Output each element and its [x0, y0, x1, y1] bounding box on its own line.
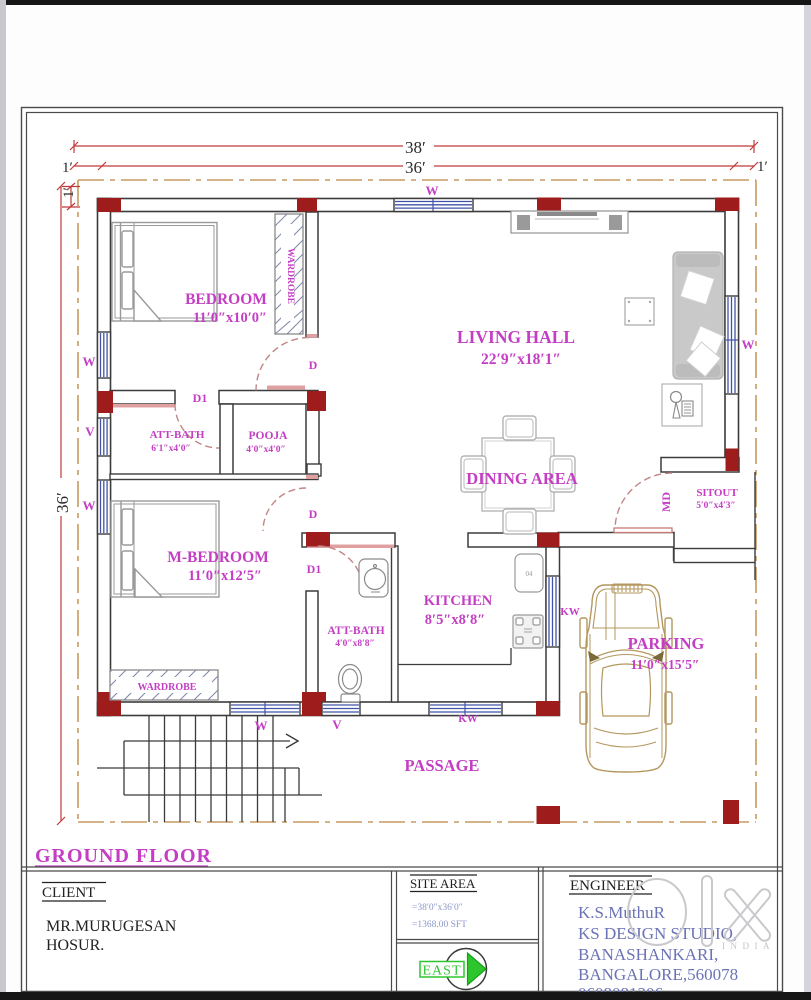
svg-text:W: W	[255, 718, 268, 733]
svg-text:4′0″x4′0″: 4′0″x4′0″	[246, 445, 286, 455]
svg-text:EAST: EAST	[423, 964, 462, 979]
svg-text:W: W	[83, 354, 96, 369]
svg-text:INDIA: INDIA	[722, 941, 775, 951]
svg-text:W: W	[83, 498, 96, 513]
svg-text:ATT-BATH: ATT-BATH	[327, 625, 384, 637]
svg-text:11′0″x15′5″: 11′0″x15′5″	[630, 657, 699, 672]
svg-text:M-BEDROOM: M-BEDROOM	[167, 549, 269, 566]
svg-text:K.S.MuthuR: K.S.MuthuR	[578, 903, 666, 922]
svg-text:22′9″x18′1″: 22′9″x18′1″	[481, 351, 561, 368]
svg-text:KW: KW	[560, 606, 580, 618]
svg-text:BANGALORE,560078: BANGALORE,560078	[578, 965, 738, 984]
svg-text:WARDROBE: WARDROBE	[138, 682, 197, 693]
svg-text:PASSAGE: PASSAGE	[405, 756, 480, 775]
svg-text:LIVING HALL: LIVING HALL	[457, 327, 575, 347]
svg-text:WARDROBE: WARDROBE	[285, 248, 295, 304]
svg-text:5′0″x4′3″: 5′0″x4′3″	[696, 501, 736, 511]
svg-text:PARKING: PARKING	[628, 634, 705, 653]
svg-text:V: V	[85, 424, 95, 439]
svg-text:=38′0″x36′0″: =38′0″x36′0″	[412, 903, 463, 913]
svg-text:6′1″x4′0″: 6′1″x4′0″	[151, 444, 191, 454]
svg-text:D: D	[309, 358, 318, 372]
svg-text:MR.MURUGESAN: MR.MURUGESAN	[46, 918, 177, 935]
svg-text:11′0″x12′5″: 11′0″x12′5″	[188, 568, 262, 584]
svg-text:04: 04	[526, 570, 534, 578]
svg-text:D: D	[309, 507, 318, 521]
svg-text:KW: KW	[458, 713, 478, 725]
svg-text:4′0″x8′8″: 4′0″x8′8″	[335, 639, 375, 649]
svg-text:D1: D1	[193, 391, 208, 405]
svg-text:BANASHANKARI,: BANASHANKARI,	[578, 945, 718, 964]
svg-text:W: W	[742, 337, 755, 352]
svg-text:SITE AREA: SITE AREA	[410, 876, 476, 891]
svg-text:ATT-BATH: ATT-BATH	[150, 429, 205, 441]
svg-text:1′: 1′	[61, 187, 77, 198]
svg-text:V: V	[332, 717, 342, 732]
svg-text:36′: 36′	[405, 158, 426, 177]
svg-text:MD: MD	[659, 492, 673, 512]
svg-text:CLIENT: CLIENT	[42, 885, 95, 901]
svg-text:11′0″x10′0″: 11′0″x10′0″	[193, 310, 267, 326]
svg-text:8′5″x8′8″: 8′5″x8′8″	[425, 612, 485, 628]
svg-text:KITCHEN: KITCHEN	[424, 593, 493, 609]
svg-text:38′: 38′	[405, 138, 426, 157]
svg-text:1′: 1′	[757, 159, 768, 175]
svg-text:36′: 36′	[53, 492, 72, 513]
svg-text:D1: D1	[307, 562, 322, 576]
svg-text:BEDROOM: BEDROOM	[185, 291, 267, 308]
svg-text:1′: 1′	[62, 160, 73, 176]
svg-text:W: W	[426, 183, 439, 198]
svg-text:HOSUR.: HOSUR.	[46, 937, 104, 954]
svg-text:GROUND FLOOR: GROUND FLOOR	[35, 845, 212, 867]
svg-text:SITOUT: SITOUT	[696, 487, 738, 499]
svg-text:DINING AREA: DINING AREA	[466, 469, 577, 488]
svg-text:=1368.00 SFT: =1368.00 SFT	[412, 920, 467, 930]
svg-text:KS DESIGN STUDIO,: KS DESIGN STUDIO,	[578, 924, 737, 943]
svg-text:POOJA: POOJA	[249, 430, 289, 442]
